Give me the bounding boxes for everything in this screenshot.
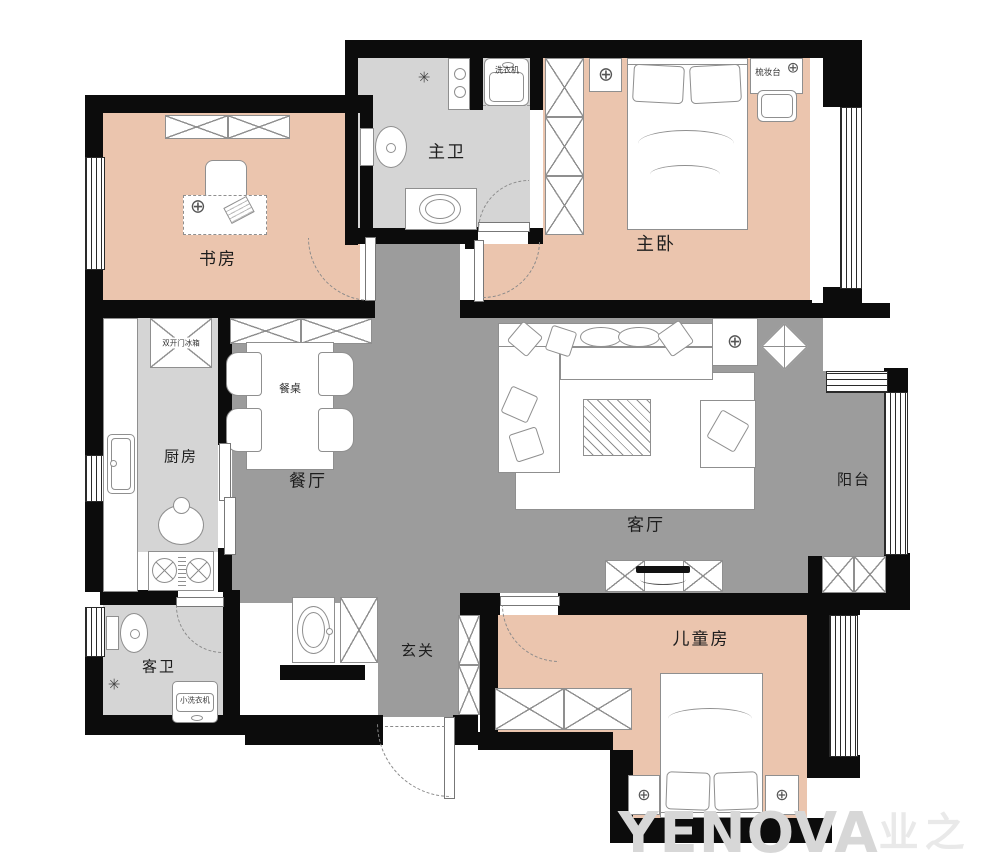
wall — [558, 593, 812, 615]
wall — [823, 40, 862, 110]
kids-wardrobe — [495, 688, 632, 730]
armchair — [700, 400, 756, 468]
gb-shower-icon: ✳ — [108, 678, 121, 693]
wall — [280, 665, 365, 680]
balcony-top-window — [826, 371, 888, 393]
wall — [810, 303, 890, 318]
side-table-lamp-icon: ⊕ — [727, 333, 743, 352]
blanket-fold — [650, 165, 720, 184]
wall — [822, 592, 910, 610]
wall — [85, 300, 375, 318]
dresser-stool — [757, 90, 797, 122]
bedroom-wardrobe — [545, 58, 584, 235]
sofa-cushion — [580, 327, 622, 347]
kitchen-sliding-door — [219, 443, 231, 501]
gb-toilet-tank — [106, 616, 119, 650]
kitchen-window — [85, 455, 105, 502]
kids-room-door — [500, 596, 560, 606]
wall — [460, 593, 500, 615]
wall — [807, 755, 860, 778]
wall — [453, 715, 478, 745]
entry-label: 玄关 — [401, 640, 435, 661]
desk-lamp-icon: ⊕ — [190, 198, 206, 217]
wall — [85, 715, 245, 735]
kids-room-window — [829, 615, 858, 757]
guest-bath-label: 客卫 — [142, 656, 176, 677]
master-bedroom-door — [474, 240, 484, 302]
dining-label: 餐厅 — [289, 467, 327, 492]
guest-bath-window — [85, 607, 105, 657]
wall — [345, 40, 823, 58]
wall — [100, 590, 178, 605]
study-chair — [205, 160, 247, 198]
wall — [360, 95, 373, 237]
corridor-floor — [373, 243, 460, 318]
bath-sink-inner — [425, 199, 455, 219]
dining-chair — [226, 408, 262, 452]
mini-washer-label: 小洗衣机 — [180, 695, 210, 706]
wall — [85, 95, 103, 157]
coffee-table — [583, 399, 651, 456]
toilet-flush — [386, 143, 396, 153]
wall — [85, 95, 360, 113]
fridge-label: 双开门冰箱 — [161, 338, 201, 349]
tv — [636, 566, 690, 573]
dresser-label: 梳妆台 — [755, 66, 781, 78]
study-label: 书房 — [199, 245, 237, 270]
dresser-mirror-icon: ⊕ — [787, 61, 800, 76]
entry-basin-inner — [302, 612, 325, 648]
balcony-notch — [823, 318, 884, 371]
stove — [148, 551, 214, 591]
living-label: 客厅 — [627, 511, 665, 536]
wall — [345, 40, 358, 245]
balcony-side-window — [884, 392, 908, 555]
kids-room-label: 儿童房 — [673, 625, 730, 650]
entry-basin-faucet — [326, 628, 333, 635]
watermark-brand: YENOVA — [618, 801, 879, 866]
study-window — [85, 157, 105, 270]
study-cabinet — [165, 115, 290, 139]
kitchen-label: 厨房 — [164, 446, 198, 467]
balcony-cabinet — [822, 556, 886, 593]
wall — [85, 655, 103, 717]
gb-toilet-flush — [130, 629, 140, 639]
dining-chair — [318, 352, 354, 396]
watermark: YENOVA业之峰装饰 — [618, 806, 1000, 867]
wall — [807, 595, 829, 757]
kitchen-sliding-door — [224, 497, 236, 555]
vanity-knob — [454, 68, 466, 80]
floor-plan-canvas: ⊕ ✳ 洗衣机 ⊕ 梳妆台 ⊕ 双开门冰箱 — [0, 0, 1000, 867]
sofa-cushion — [618, 327, 660, 347]
nightstand-lamp-icon: ⊕ — [598, 66, 614, 85]
wall — [530, 40, 543, 110]
wall — [460, 300, 812, 318]
tv-screen-line — [640, 574, 686, 585]
wall — [223, 590, 240, 717]
pillow — [689, 64, 742, 105]
balcony-label: 阳台 — [837, 469, 871, 490]
master-bath-label: 主卫 — [428, 138, 466, 163]
wall — [808, 556, 822, 610]
blanket-fold — [638, 130, 734, 157]
shoe-cabinet — [458, 615, 480, 715]
dining-table-label: 餐桌 — [279, 380, 301, 396]
wall — [468, 40, 483, 110]
toilet-tank — [360, 128, 374, 166]
dining-cabinet — [230, 318, 372, 344]
pillow — [632, 64, 685, 105]
shower-icon: ✳ — [418, 71, 431, 86]
person-head — [173, 497, 190, 514]
master-bedroom-label: 主卧 — [636, 230, 676, 256]
washer-label: 洗衣机 — [495, 65, 519, 76]
bedroom-bay-window — [840, 107, 862, 289]
sofa-seat — [560, 347, 713, 380]
dining-chair — [226, 352, 262, 396]
wall — [85, 318, 103, 455]
dining-chair — [318, 408, 354, 452]
wall — [478, 732, 613, 750]
wall — [85, 500, 103, 592]
vanity-knob — [454, 86, 466, 98]
blanket-fold — [668, 708, 752, 729]
entry-cabinet — [340, 597, 378, 663]
sink-faucet — [110, 460, 117, 467]
wall — [245, 715, 383, 745]
guest-bath-door — [176, 597, 224, 607]
bath-vanity-top — [448, 58, 470, 110]
